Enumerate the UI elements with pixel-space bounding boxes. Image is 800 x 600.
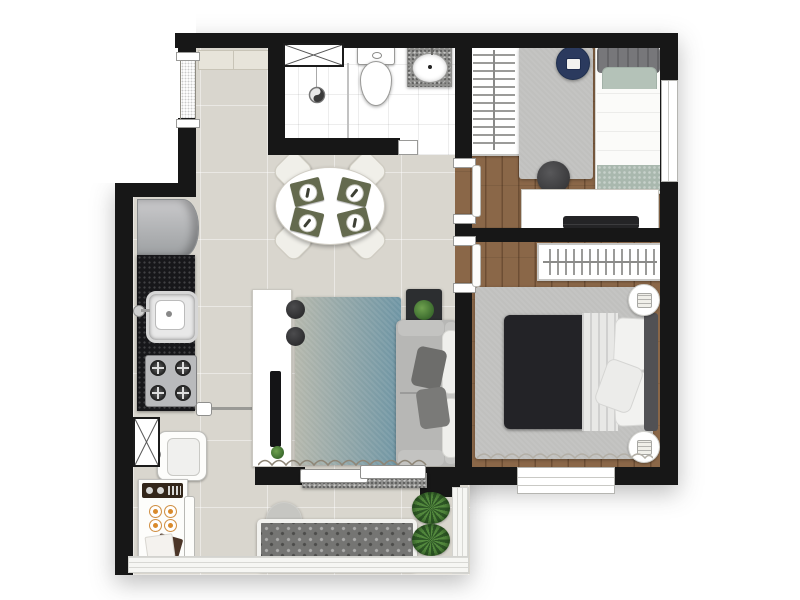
tank-basin [167,438,200,476]
sink-drain-icon [166,311,172,317]
plate-icon [297,212,319,234]
sofa-cushion [415,386,450,430]
place-setting [290,207,325,238]
bowl-icon [149,505,162,518]
bedroom1-wardrobe [467,44,521,156]
shower-drain-icon [308,86,326,104]
duvet [597,89,660,169]
planter-icon [412,524,450,556]
wall-living-bottom-a [255,467,305,485]
balcony-railing-bottom [128,556,469,573]
single-bed [595,44,664,194]
wall-hall-c [455,287,472,485]
bowl-icon [164,519,177,532]
bedroom1-door-leaf [472,165,481,217]
entry-door-frame [176,119,200,128]
duvet [504,315,584,429]
bedroom1-window [661,80,678,182]
nightstand [628,284,660,316]
dining-table [275,167,385,245]
refrigerator [137,199,199,257]
service-door-handle [196,402,212,416]
exterior-notch [0,0,196,183]
burner-icon [150,385,166,401]
bathroom-door-jamb [398,140,418,155]
pouf-tray-icon [566,58,581,70]
bedroom1-door-threshold [455,166,472,214]
bowl-icon [164,505,177,518]
bed-headboard [644,313,658,431]
sink-faucet-stem [141,309,150,312]
bathroom-vent-shaft [283,43,344,67]
tv [270,371,281,447]
foot-blanket [597,165,660,191]
burner-icon [175,385,191,401]
entry-door [180,58,196,122]
cooktop [145,355,197,407]
bedroom2-curtain [477,450,653,463]
washer-buttons [168,486,181,495]
washing-machine [138,479,188,561]
pouf-icon [286,327,305,346]
place-setting [337,207,372,238]
entry-cabinet [198,50,272,70]
plate-icon [344,212,366,234]
bowl-icon [149,519,162,532]
floor-plan [0,0,800,600]
shower-partition [347,63,349,140]
burner-icon [150,360,166,376]
side-table-plant-icon [414,300,434,320]
place-setting [290,177,325,208]
wall-left [115,183,133,575]
bedroom2-door-threshold [455,244,472,283]
washer-knob-icon [146,487,153,494]
flush-button-icon [372,52,382,59]
navy-pouf [556,46,590,80]
wall-bathroom-bottom [268,138,400,155]
sliding-door-panel [300,469,368,483]
washer-control-panel [142,483,183,498]
bedroom2-wardrobe [537,243,663,281]
bedroom2-door-leaf [472,244,481,287]
plate-icon [344,182,366,204]
sofa [396,320,458,466]
plate-icon [297,182,319,204]
wall-bedrooms-divider [455,228,678,242]
laundry-tank [157,431,207,481]
living-rug [295,297,401,465]
sliding-door-panel [360,465,426,479]
pouf-icon [286,300,305,319]
service-duct-shaft [133,417,160,467]
burner-icon [175,360,191,376]
wall-top [175,33,660,48]
wall-hall-a [455,33,472,163]
hangers-icon [543,249,657,275]
kitchen-sink [146,291,198,343]
lamp-icon [637,293,652,308]
entry-door-frame [176,52,200,61]
bedroom2-window [517,467,615,494]
basin-drain-icon [428,65,432,69]
service-door-leaf [184,496,195,560]
sofa-armrest [398,320,444,336]
planter-icon [412,492,450,524]
desk [521,189,659,232]
double-bed [504,312,658,432]
place-setting [337,177,372,208]
vanity-counter [407,45,452,87]
hangers-icon [473,50,515,150]
washer-knob-icon [157,487,164,494]
